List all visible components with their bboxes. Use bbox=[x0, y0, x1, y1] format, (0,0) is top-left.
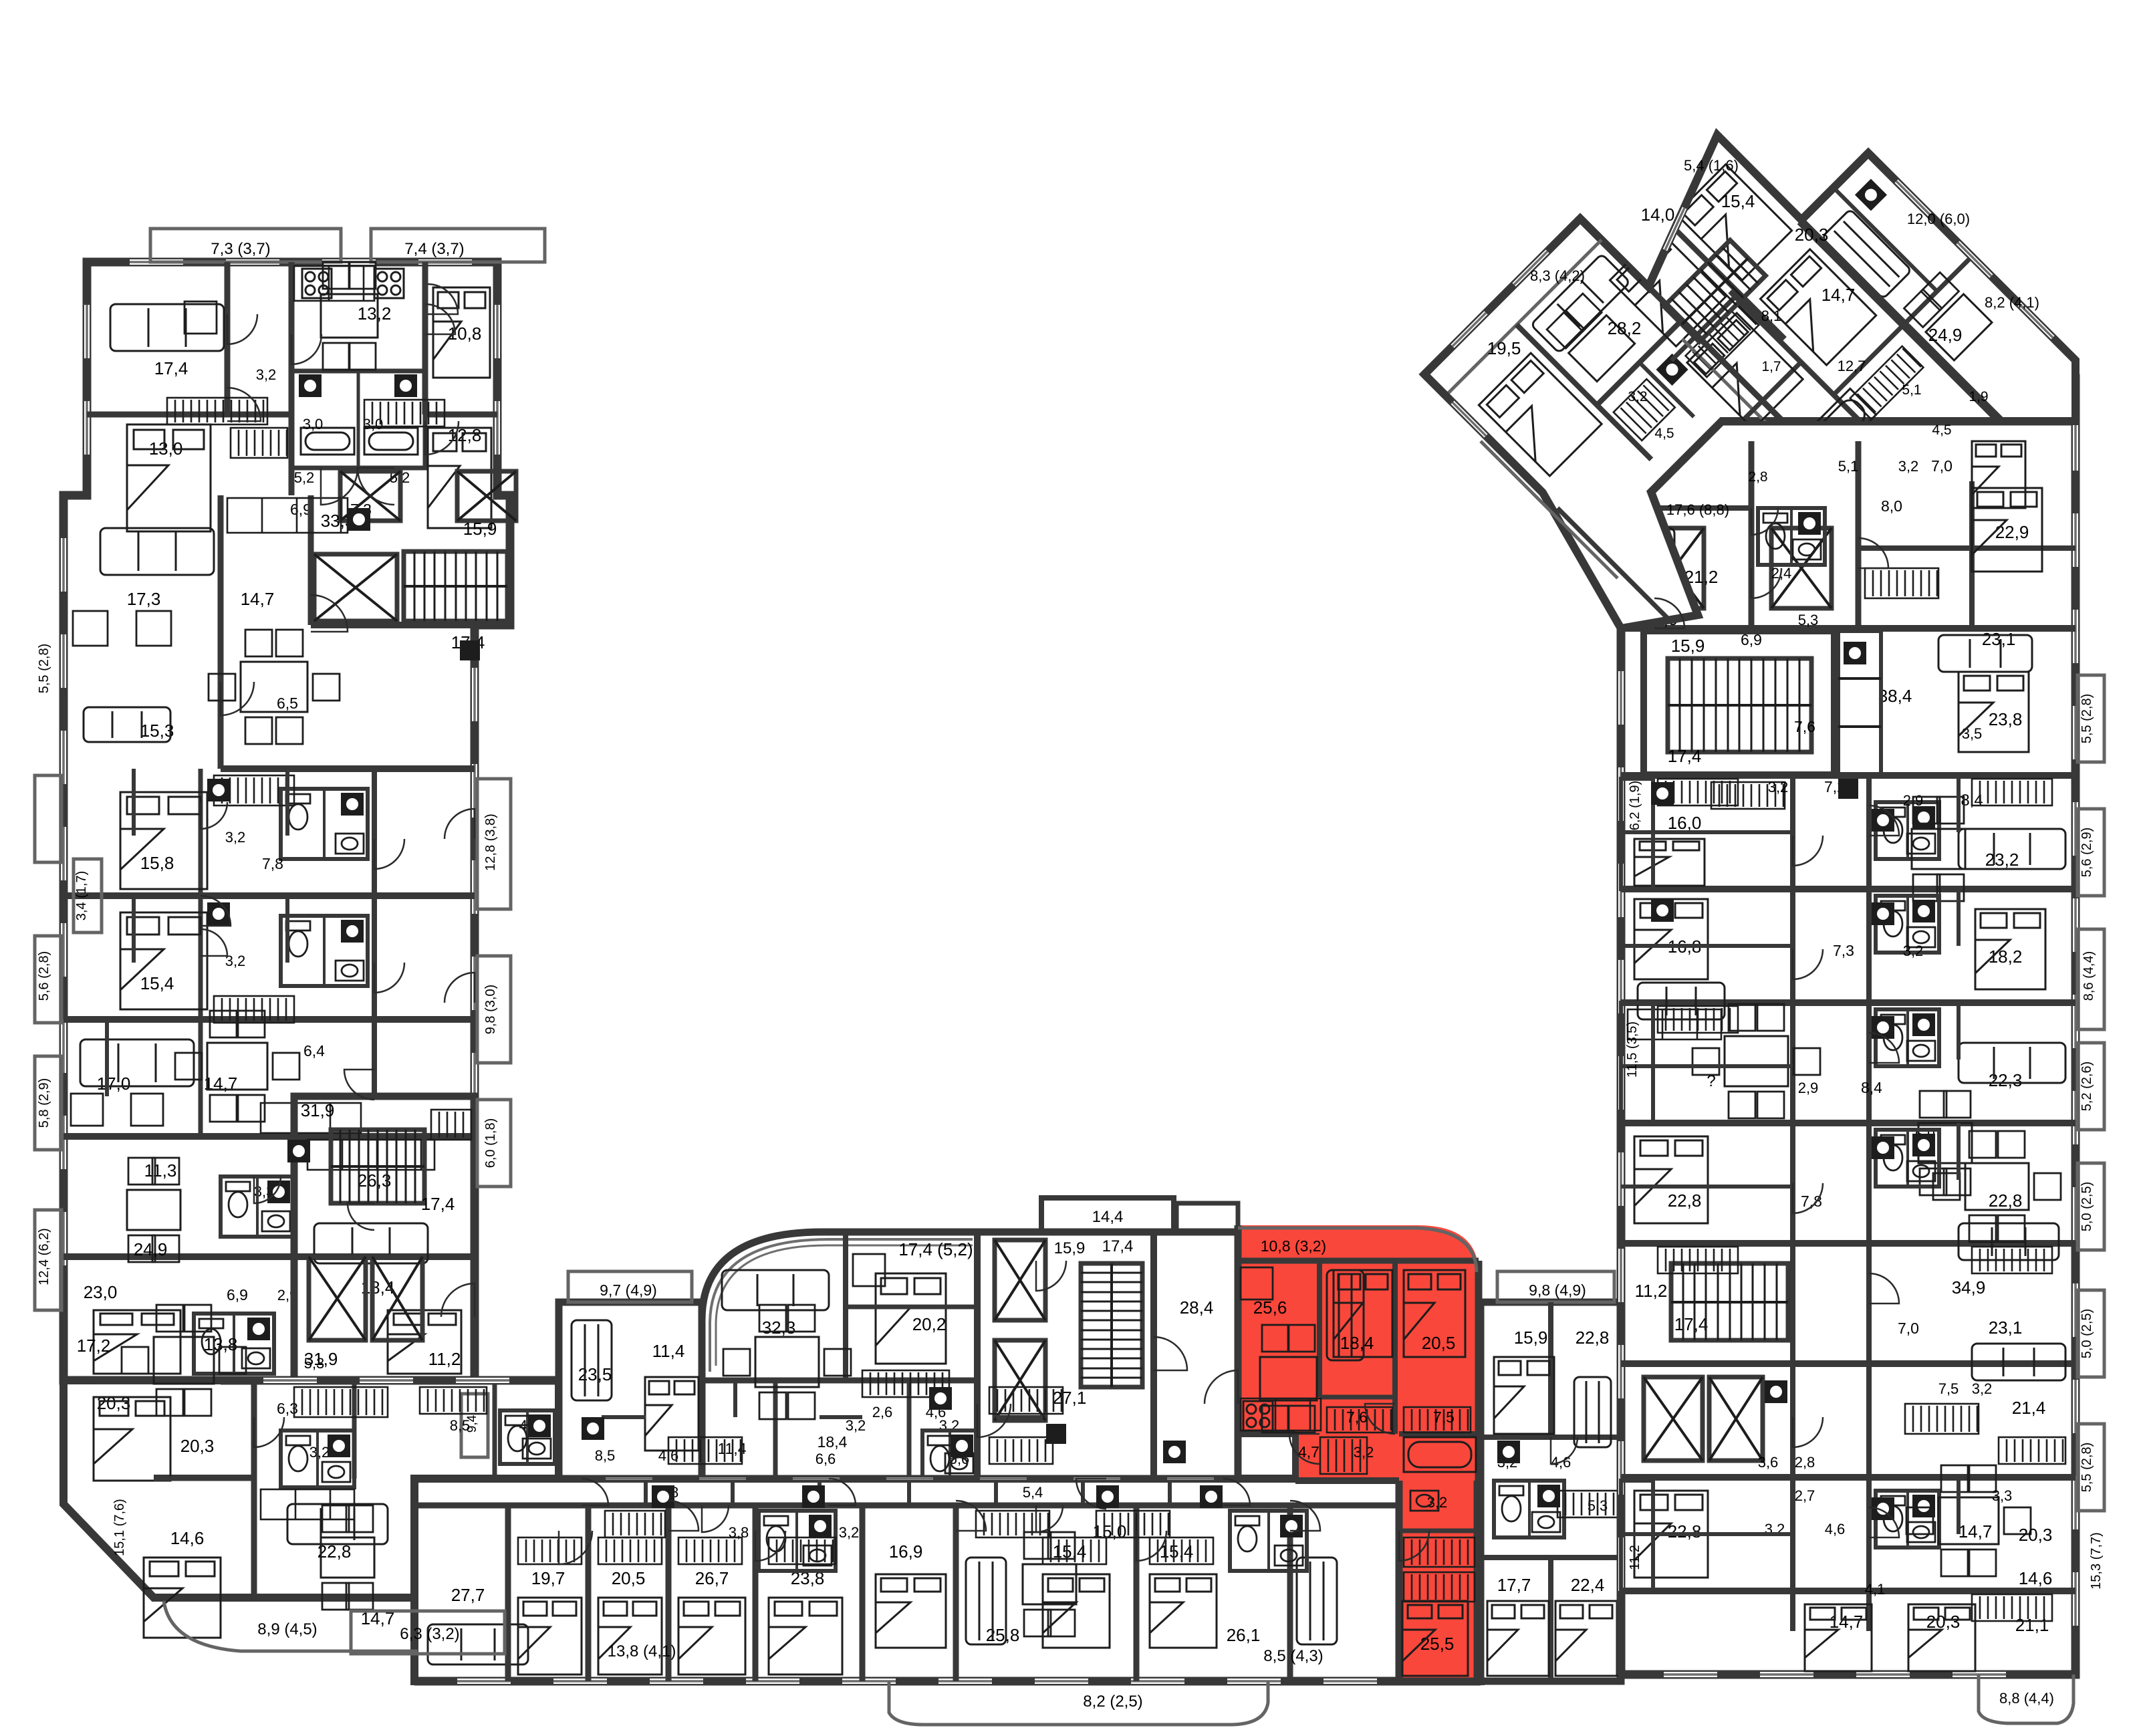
svg-text:6,9: 6,9 bbox=[227, 1286, 248, 1304]
svg-text:26,7: 26,7 bbox=[695, 1568, 729, 1588]
svg-text:22,8: 22,8 bbox=[1668, 1191, 1702, 1211]
svg-text:7,0: 7,0 bbox=[1898, 1320, 1919, 1337]
svg-text:13,8 (4,1): 13,8 (4,1) bbox=[608, 1642, 676, 1660]
svg-text:5,4 (1,6): 5,4 (1,6) bbox=[1684, 157, 1739, 174]
svg-text:1,7: 1,7 bbox=[1761, 359, 1781, 374]
svg-text:5,0 (2,5): 5,0 (2,5) bbox=[2080, 1309, 2094, 1358]
svg-text:3,2: 3,2 bbox=[1768, 779, 1789, 795]
svg-text:5,4: 5,4 bbox=[1023, 1484, 1043, 1501]
svg-text:3,2: 3,2 bbox=[839, 1524, 860, 1541]
svg-text:17,2: 17,2 bbox=[77, 1336, 111, 1356]
svg-text:17,0: 17,0 bbox=[97, 1074, 131, 1094]
svg-text:3,3: 3,3 bbox=[1992, 1487, 2013, 1504]
svg-text:14,7: 14,7 bbox=[1821, 285, 1856, 305]
svg-text:3,2: 3,2 bbox=[256, 366, 277, 383]
svg-text:14,6: 14,6 bbox=[2019, 1568, 2053, 1588]
svg-text:10,8 (3,2): 10,8 (3,2) bbox=[1261, 1237, 1326, 1255]
svg-text:8,4: 8,4 bbox=[1861, 1079, 1882, 1096]
svg-text:15,1 (7,6): 15,1 (7,6) bbox=[112, 1499, 127, 1556]
svg-text:7,4 (3,7): 7,4 (3,7) bbox=[404, 240, 464, 258]
svg-text:8,2 (2,5): 8,2 (2,5) bbox=[1083, 1693, 1142, 1711]
svg-text:26,1: 26,1 bbox=[1227, 1625, 1261, 1645]
svg-text:6,5: 6,5 bbox=[277, 695, 298, 712]
svg-text:7,3: 7,3 bbox=[1833, 942, 1854, 959]
svg-text:3,2: 3,2 bbox=[225, 953, 246, 969]
svg-text:12,8 (3,8): 12,8 (3,8) bbox=[483, 814, 498, 871]
svg-text:17,4: 17,4 bbox=[1102, 1237, 1134, 1255]
svg-text:17,7: 17,7 bbox=[1497, 1575, 1531, 1595]
svg-text:17,4: 17,4 bbox=[1668, 746, 1702, 766]
svg-text:20,5: 20,5 bbox=[612, 1568, 646, 1588]
svg-text:3,2: 3,2 bbox=[309, 1444, 330, 1461]
svg-text:17,4: 17,4 bbox=[421, 1194, 455, 1214]
svg-text:25,8: 25,8 bbox=[986, 1625, 1020, 1645]
svg-text:16,9: 16,9 bbox=[889, 1541, 923, 1562]
svg-text:8,5: 8,5 bbox=[450, 1417, 471, 1434]
svg-text:38,4: 38,4 bbox=[1878, 686, 1912, 706]
svg-text:6,0 (1,8): 6,0 (1,8) bbox=[483, 1118, 498, 1168]
svg-text:22,8: 22,8 bbox=[1576, 1328, 1610, 1348]
svg-text:6,6: 6,6 bbox=[815, 1451, 836, 1467]
svg-text:3,4 (1,7): 3,4 (1,7) bbox=[74, 871, 89, 920]
svg-text:2,8: 2,8 bbox=[1748, 469, 1767, 485]
svg-text:15,9: 15,9 bbox=[1671, 636, 1705, 656]
svg-text:15,3 (7,7): 15,3 (7,7) bbox=[2089, 1532, 2104, 1590]
svg-text:11,2: 11,2 bbox=[1628, 1545, 1642, 1570]
svg-text:2,6: 2,6 bbox=[872, 1404, 893, 1420]
svg-text:2,7: 2,7 bbox=[1795, 1487, 1815, 1504]
svg-text:24,9: 24,9 bbox=[134, 1239, 168, 1259]
svg-text:5,1: 5,1 bbox=[1902, 382, 1921, 398]
svg-text:22,8: 22,8 bbox=[1668, 1521, 1702, 1541]
svg-text:3,2: 3,2 bbox=[1898, 458, 1919, 475]
svg-text:5,1: 5,1 bbox=[1838, 458, 1859, 475]
svg-text:16,0: 16,0 bbox=[1668, 813, 1702, 833]
svg-text:5,2: 5,2 bbox=[294, 469, 315, 486]
svg-text:3,6: 3,6 bbox=[1758, 1454, 1779, 1471]
svg-text:23,1: 23,1 bbox=[1989, 1318, 2023, 1338]
svg-text:3,2: 3,2 bbox=[1354, 1444, 1374, 1461]
svg-text:23,1: 23,1 bbox=[1982, 629, 2016, 649]
svg-text:4,5: 4,5 bbox=[1932, 422, 1951, 438]
svg-text:15,4: 15,4 bbox=[140, 973, 174, 993]
svg-text:5,0 (2,5): 5,0 (2,5) bbox=[2080, 1182, 2094, 1231]
svg-text:15,8: 15,8 bbox=[140, 853, 174, 873]
svg-text:14,7: 14,7 bbox=[1959, 1521, 1993, 1541]
svg-text:9,8 (4,9): 9,8 (4,9) bbox=[1529, 1281, 1586, 1299]
svg-text:7,6: 7,6 bbox=[1794, 718, 1815, 735]
svg-text:12,0 (6,0): 12,0 (6,0) bbox=[1907, 211, 1970, 227]
svg-text:12,7: 12,7 bbox=[1838, 358, 1866, 374]
svg-text:9,7 (4,9): 9,7 (4,9) bbox=[600, 1281, 657, 1299]
svg-text:34,9: 34,9 bbox=[1952, 1277, 1986, 1297]
svg-text:3,0: 3,0 bbox=[303, 416, 324, 432]
svg-text:17,4 (5,2): 17,4 (5,2) bbox=[898, 1239, 973, 1259]
svg-text:17,4: 17,4 bbox=[154, 358, 188, 378]
svg-text:5,6 (2,8): 5,6 (2,8) bbox=[37, 951, 51, 1001]
svg-text:8,9 (4,5): 8,9 (4,5) bbox=[257, 1620, 317, 1638]
svg-text:11,4: 11,4 bbox=[652, 1341, 685, 1361]
svg-text:20,3: 20,3 bbox=[2019, 1525, 2053, 1545]
svg-text:23,8: 23,8 bbox=[1989, 709, 2023, 729]
svg-text:3,2: 3,2 bbox=[1972, 1380, 1993, 1397]
svg-text:8,0: 8,0 bbox=[1881, 497, 1902, 515]
svg-text:19,7: 19,7 bbox=[531, 1568, 565, 1588]
svg-text:20,3: 20,3 bbox=[1795, 225, 1829, 245]
svg-text:23,5: 23,5 bbox=[578, 1364, 612, 1384]
svg-text:14,4: 14,4 bbox=[1092, 1208, 1124, 1226]
svg-text:5,3: 5,3 bbox=[1798, 612, 1819, 628]
svg-text:8,5: 8,5 bbox=[595, 1447, 616, 1464]
svg-text:7,6: 7,6 bbox=[1346, 1408, 1368, 1426]
svg-text:15,0: 15,0 bbox=[1093, 1521, 1127, 1541]
svg-text:1,9: 1,9 bbox=[1969, 389, 1988, 404]
svg-text:3,2: 3,2 bbox=[1628, 389, 1647, 404]
svg-text:3,2: 3,2 bbox=[846, 1417, 866, 1434]
svg-text:5,5 (2,8): 5,5 (2,8) bbox=[37, 644, 51, 693]
svg-text:8,8 (4,4): 8,8 (4,4) bbox=[1999, 1690, 2054, 1707]
svg-text:7,8: 7,8 bbox=[262, 855, 283, 872]
svg-text:27,7: 27,7 bbox=[451, 1585, 485, 1605]
svg-text:4,5: 4,5 bbox=[1654, 426, 1674, 441]
svg-text:20,3: 20,3 bbox=[180, 1436, 215, 1456]
svg-text:22,4: 22,4 bbox=[1571, 1575, 1605, 1595]
svg-text:25,5: 25,5 bbox=[1420, 1634, 1455, 1654]
svg-text:13,2: 13,2 bbox=[358, 303, 392, 324]
svg-text:7,5: 7,5 bbox=[1938, 1380, 1959, 1397]
svg-text:15,9: 15,9 bbox=[1054, 1239, 1086, 1257]
svg-text:11,5 (3,5): 11,5 (3,5) bbox=[1625, 1021, 1640, 1078]
svg-text:17,3: 17,3 bbox=[127, 589, 161, 609]
svg-text:20,2: 20,2 bbox=[912, 1314, 947, 1334]
svg-text:23,2: 23,2 bbox=[1985, 850, 2019, 870]
svg-text:15,4: 15,4 bbox=[1721, 191, 1755, 211]
svg-text:22,8: 22,8 bbox=[1989, 1191, 2023, 1211]
svg-text:14,0: 14,0 bbox=[1641, 205, 1675, 225]
svg-text:6,2 (1,9): 6,2 (1,9) bbox=[1628, 781, 1642, 830]
svg-text:15,3: 15,3 bbox=[140, 721, 174, 741]
svg-text:28,2: 28,2 bbox=[1608, 318, 1642, 338]
svg-text:11,3: 11,3 bbox=[144, 1160, 177, 1181]
svg-text:9,8 (3,0): 9,8 (3,0) bbox=[483, 985, 498, 1034]
svg-text:6,3 (3,2): 6,3 (3,2) bbox=[400, 1625, 459, 1643]
svg-text:17,6 (8,8): 17,6 (8,8) bbox=[1666, 501, 1729, 518]
svg-text:7,3 (3,7): 7,3 (3,7) bbox=[211, 240, 270, 258]
svg-text:19,5: 19,5 bbox=[1487, 338, 1521, 358]
svg-text:8,3 (4,2): 8,3 (4,2) bbox=[1530, 267, 1585, 284]
svg-text:25,6: 25,6 bbox=[1253, 1297, 1287, 1318]
svg-text:18,4: 18,4 bbox=[1340, 1333, 1374, 1353]
svg-text:8,2 (4,1): 8,2 (4,1) bbox=[1985, 294, 2039, 311]
svg-text:2,8: 2,8 bbox=[1795, 1454, 1815, 1471]
svg-text:5,8 (2,9): 5,8 (2,9) bbox=[37, 1078, 51, 1128]
svg-text:22,9: 22,9 bbox=[1995, 522, 2029, 542]
svg-text:3,2: 3,2 bbox=[225, 829, 246, 846]
svg-text:5,5 (2,8): 5,5 (2,8) bbox=[2080, 1443, 2094, 1492]
svg-text:8,6 (4,4): 8,6 (4,4) bbox=[2082, 951, 2096, 1001]
svg-text:5,5 (2,8): 5,5 (2,8) bbox=[2080, 694, 2094, 743]
svg-text:5,6 (2,9): 5,6 (2,9) bbox=[2080, 828, 2094, 877]
svg-text:17,4: 17,4 bbox=[1674, 1314, 1709, 1334]
svg-text:4,6: 4,6 bbox=[1825, 1521, 1846, 1537]
svg-text:2,9: 2,9 bbox=[1798, 1080, 1819, 1096]
svg-text:5,3: 5,3 bbox=[304, 1355, 325, 1372]
svg-text:3,2: 3,2 bbox=[1903, 943, 1924, 959]
svg-text:5,2 (2,6): 5,2 (2,6) bbox=[2080, 1062, 2094, 1111]
svg-text:20,5: 20,5 bbox=[1422, 1333, 1456, 1353]
svg-text:23,0: 23,0 bbox=[84, 1282, 118, 1302]
svg-text:3,5: 3,5 bbox=[1962, 725, 1983, 742]
svg-text:14,6: 14,6 bbox=[170, 1528, 205, 1548]
svg-text:4,1: 4,1 bbox=[1865, 1581, 1886, 1598]
svg-text:6,4: 6,4 bbox=[303, 1042, 325, 1060]
svg-text:6,9: 6,9 bbox=[1741, 631, 1762, 648]
svg-text:21,4: 21,4 bbox=[2012, 1398, 2046, 1418]
svg-text:8,5 (4,3): 8,5 (4,3) bbox=[1263, 1647, 1323, 1665]
svg-text:15,4: 15,4 bbox=[1160, 1541, 1194, 1562]
svg-text:14,7: 14,7 bbox=[241, 589, 275, 609]
svg-text:32,3: 32,3 bbox=[762, 1318, 796, 1338]
svg-text:18,4: 18,4 bbox=[817, 1433, 848, 1451]
svg-text:24,9: 24,9 bbox=[1928, 325, 1963, 345]
svg-text:15,4: 15,4 bbox=[1053, 1541, 1087, 1562]
svg-text:15,9: 15,9 bbox=[463, 519, 497, 539]
svg-text:7,5: 7,5 bbox=[1433, 1408, 1455, 1426]
svg-text:11,2: 11,2 bbox=[428, 1349, 461, 1369]
svg-text:31,9: 31,9 bbox=[301, 1100, 335, 1120]
svg-text:27,1: 27,1 bbox=[1053, 1388, 1087, 1408]
svg-text:8,1: 8,1 bbox=[1761, 307, 1782, 324]
svg-text:11,2: 11,2 bbox=[1635, 1281, 1668, 1301]
svg-text:28,4: 28,4 bbox=[1180, 1297, 1214, 1318]
svg-text:12,4 (6,2): 12,4 (6,2) bbox=[37, 1228, 51, 1285]
svg-text:7,0: 7,0 bbox=[1931, 457, 1953, 475]
svg-text:15,9: 15,9 bbox=[1514, 1328, 1548, 1348]
